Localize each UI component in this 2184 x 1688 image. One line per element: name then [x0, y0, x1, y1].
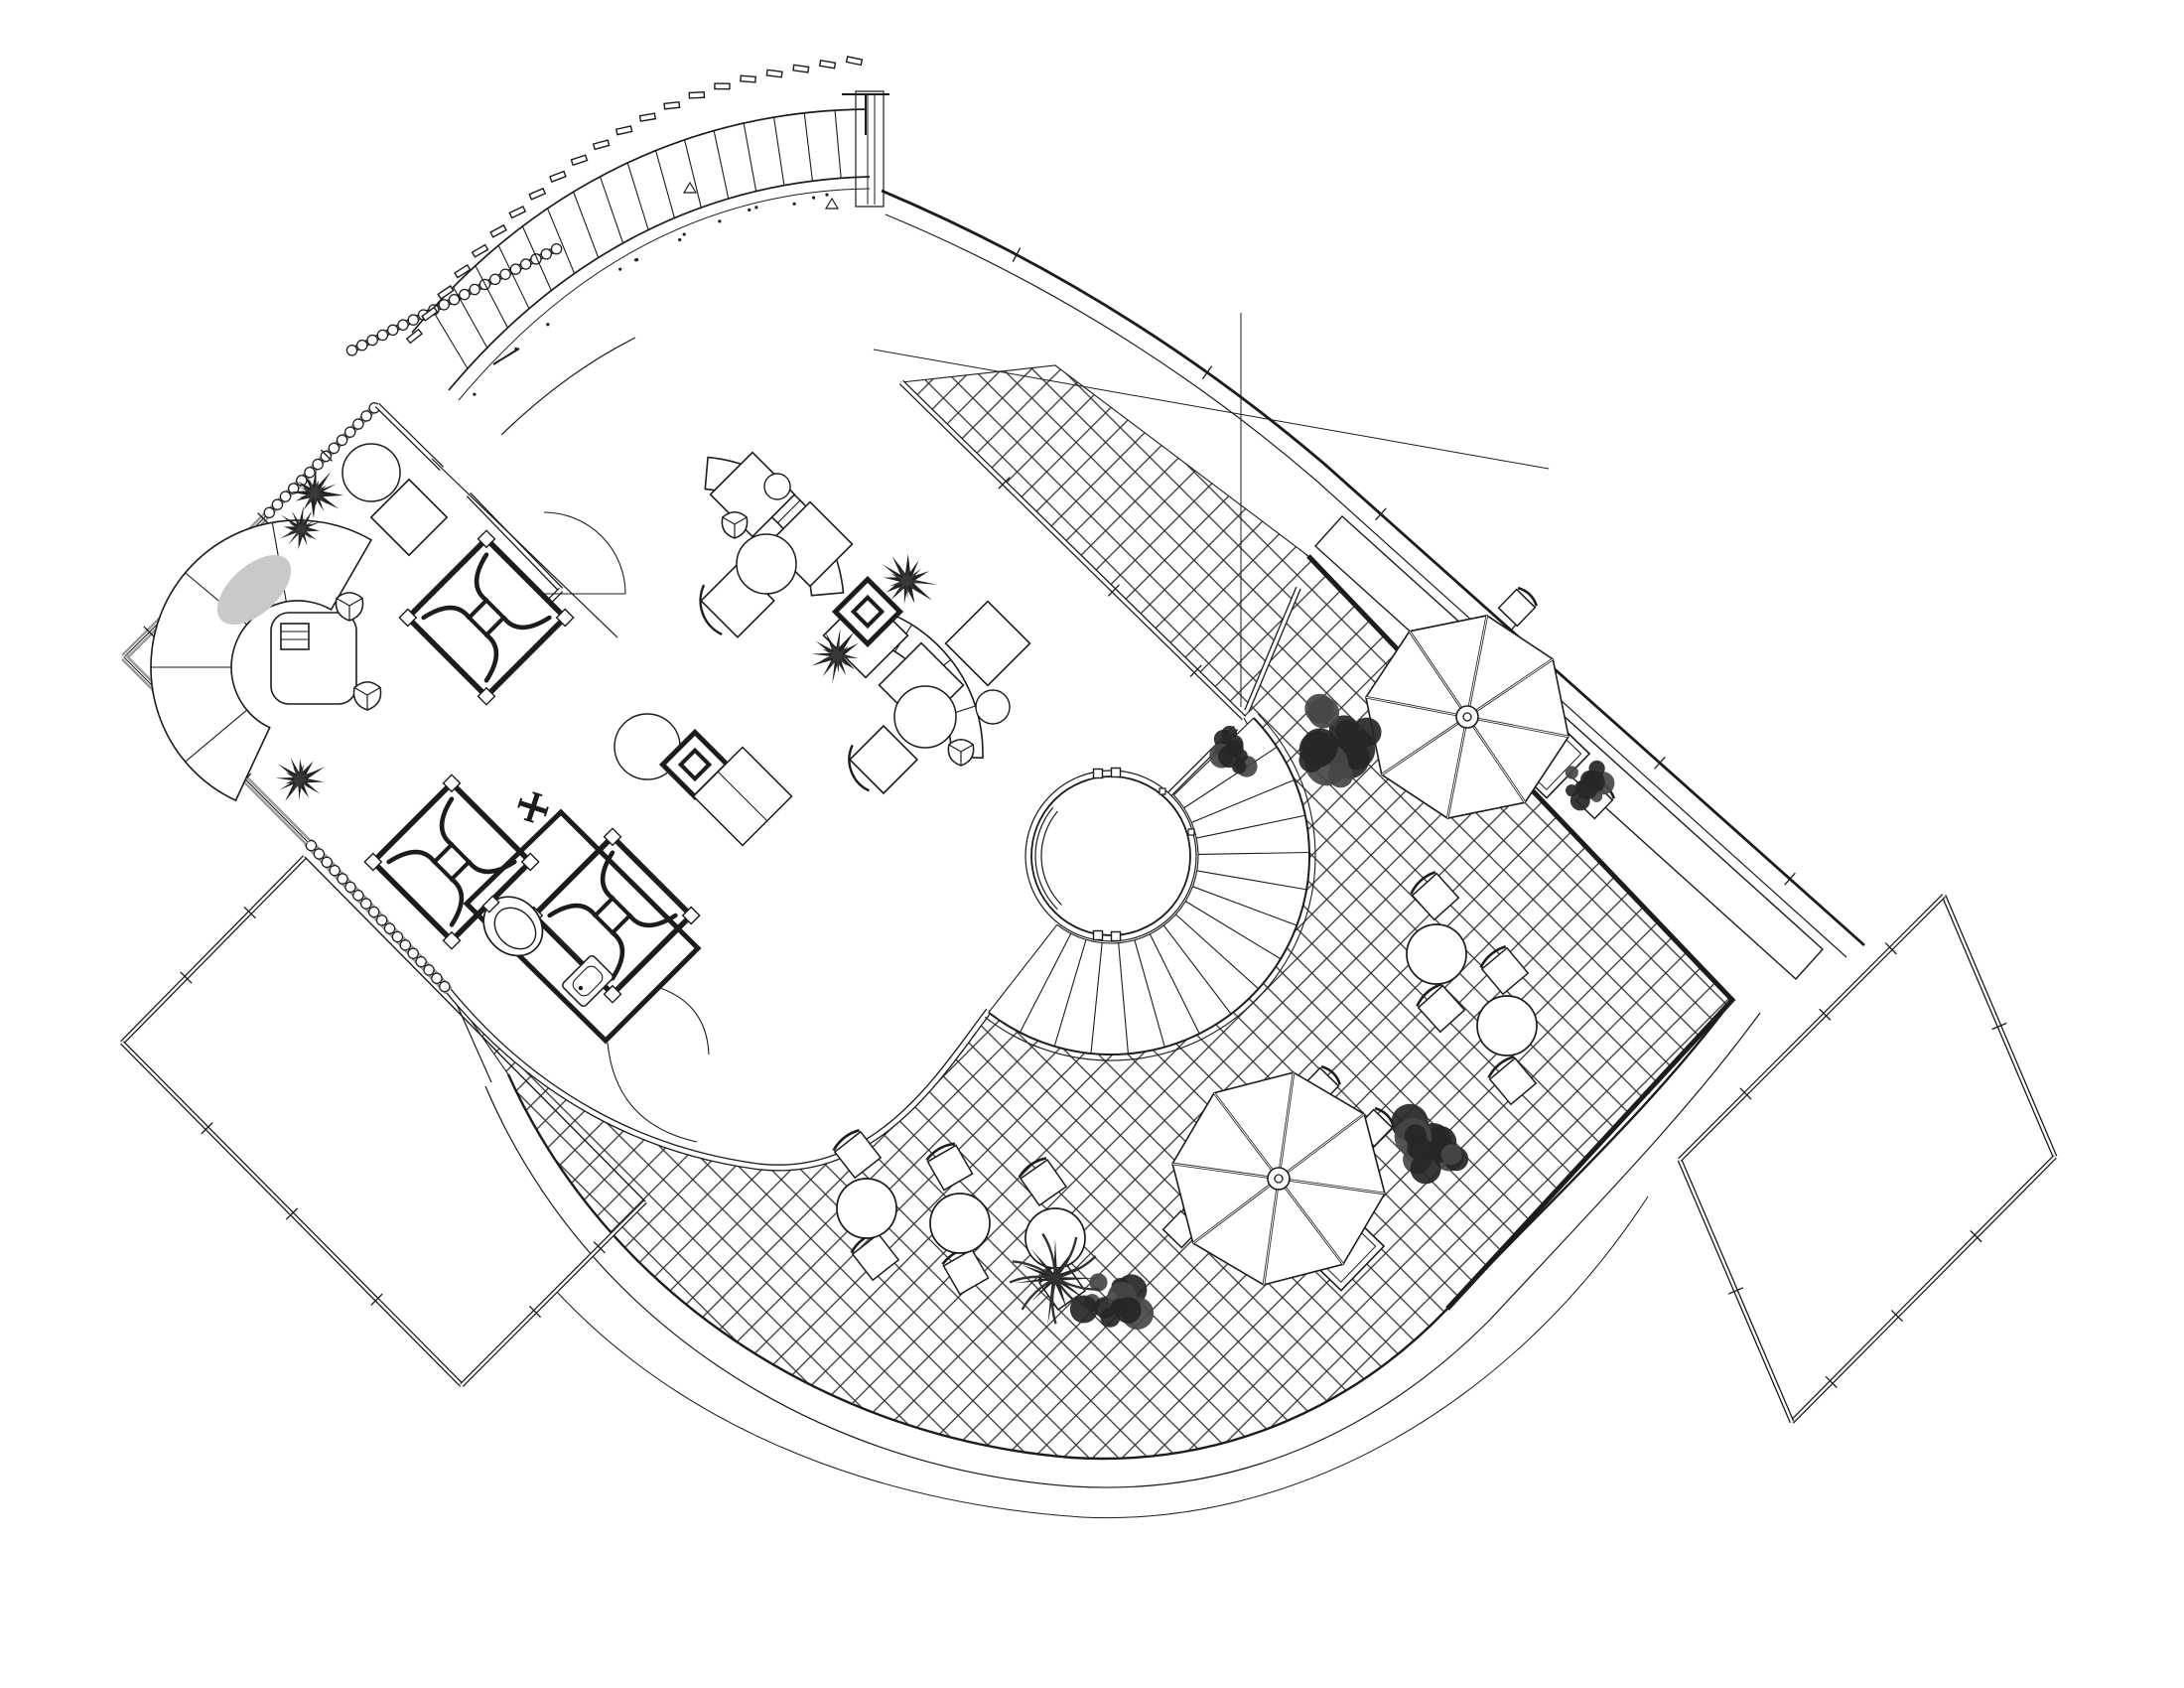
canopy-dash — [820, 61, 836, 69]
canopy-dash — [571, 155, 587, 165]
trefoil-stool — [948, 740, 973, 766]
level-marker — [826, 199, 838, 209]
floor-plan-svg — [0, 0, 2184, 1688]
canopy-dash — [689, 92, 704, 98]
canopy-dash — [640, 113, 656, 121]
left-roof-se — [462, 1201, 645, 1385]
cafe-table — [1407, 924, 1466, 984]
wc-swing-1 — [660, 988, 709, 1055]
canopy-dash — [407, 330, 422, 344]
stool — [976, 690, 1010, 724]
right-roof-nw — [1680, 896, 1944, 1160]
canopy-dash — [616, 126, 632, 135]
stool — [764, 474, 790, 499]
cafe-table — [1477, 996, 1537, 1055]
canopy-dash — [455, 265, 471, 278]
cross-marker — [515, 789, 550, 824]
round-table — [894, 686, 956, 748]
left-room-layer — [151, 444, 447, 800]
canopy-dash — [550, 172, 566, 182]
cafe-table — [837, 1179, 896, 1238]
left-roof-nw — [122, 857, 305, 1043]
canopy-dash — [766, 70, 782, 76]
trefoil-stool — [722, 512, 747, 538]
lounge-furniture-layer — [614, 453, 1029, 846]
elevator-core — [399, 530, 573, 704]
trefoil-stool — [353, 682, 380, 710]
stair-platform-wall — [868, 93, 875, 205]
left-roof-sw — [122, 1043, 462, 1385]
potted-plant — [276, 758, 325, 801]
canopy-dash — [664, 102, 680, 109]
canopy-dash — [793, 65, 809, 72]
canopy-layer — [407, 57, 863, 343]
canopy-dash — [715, 83, 730, 89]
top-stair-layer — [412, 109, 870, 400]
canopy-dash — [473, 245, 488, 257]
stair-treads — [432, 110, 841, 368]
canopy-dash — [741, 75, 755, 82]
right-roof-ne — [1944, 896, 2055, 1157]
stair-tbar — [842, 94, 889, 135]
level-marker — [684, 183, 696, 193]
potted-plant — [882, 554, 937, 605]
canopy-dash — [509, 207, 525, 217]
canopy-dash — [847, 57, 863, 65]
cafe-table — [930, 1194, 990, 1253]
canopy-dash — [529, 189, 545, 200]
table-tray — [281, 624, 309, 649]
side-table — [342, 444, 400, 501]
upper-left-wall — [346, 244, 561, 355]
chair — [1499, 586, 1540, 627]
canopy-dash — [490, 225, 506, 237]
right-roof-se — [1792, 1157, 2055, 1422]
right-roof-sw — [1680, 1160, 1792, 1422]
stair-bench-arc — [501, 338, 635, 435]
floor-plan-sheet — [0, 0, 2184, 1688]
canopy-dash — [594, 140, 610, 149]
round-table — [737, 534, 796, 594]
